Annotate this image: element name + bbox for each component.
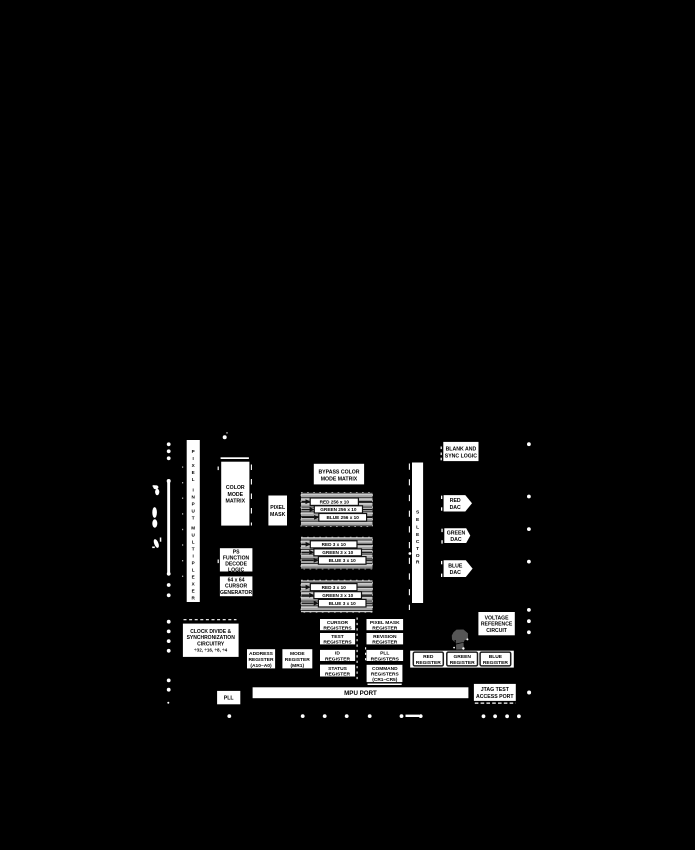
- svg-text:GREEN: GREEN: [453, 654, 471, 660]
- svg-text:MPU PORT: MPU PORT: [344, 690, 377, 697]
- svg-text:DAC: DAC: [450, 570, 461, 576]
- svg-text:BLUE: BLUE: [489, 654, 503, 660]
- svg-text:(CR1–CR5): (CR1–CR5): [372, 677, 397, 683]
- svg-text:REGISTER: REGISTER: [416, 660, 441, 666]
- svg-text:O: O: [416, 553, 420, 559]
- svg-text:L: L: [192, 477, 195, 482]
- svg-text:GENERATOR: GENERATOR: [220, 590, 252, 596]
- svg-text:÷32, ÷16, ÷8, ÷4: ÷32, ÷16, ÷8, ÷4: [194, 648, 228, 653]
- svg-text:REGISTER: REGISTER: [325, 656, 350, 662]
- svg-text:RED: RED: [450, 498, 461, 504]
- svg-text:REGISTER: REGISTER: [483, 660, 508, 666]
- svg-text:STATUS: STATUS: [328, 666, 348, 672]
- svg-text:RED 3 x 10: RED 3 x 10: [322, 585, 347, 590]
- svg-text:CIRCUITRY: CIRCUITRY: [197, 641, 225, 647]
- svg-text:REGISTER: REGISTER: [285, 657, 310, 663]
- svg-text:SYNC LOGIC: SYNC LOGIC: [445, 453, 478, 459]
- svg-text:COMMAND: COMMAND: [372, 666, 398, 672]
- svg-text:P: P: [192, 449, 195, 454]
- svg-text:SYNCHRONIZATION: SYNCHRONIZATION: [187, 635, 236, 641]
- svg-text:REGISTERS: REGISTERS: [323, 625, 352, 631]
- svg-text:DAC: DAC: [450, 505, 461, 511]
- svg-text:CLOCK DIVIDE &: CLOCK DIVIDE &: [190, 629, 231, 635]
- svg-text:REGISTERS: REGISTERS: [371, 656, 400, 662]
- svg-text:I: I: [193, 487, 194, 492]
- svg-text:COLOR: COLOR: [226, 485, 245, 491]
- svg-text:PLL: PLL: [380, 651, 389, 657]
- svg-text:REGISTER: REGISTER: [372, 625, 397, 631]
- svg-text:BLUE 3 x 10: BLUE 3 x 10: [329, 601, 356, 606]
- svg-text:REGISTERS: REGISTERS: [371, 672, 400, 678]
- svg-text:REGISTER: REGISTER: [325, 671, 350, 677]
- svg-text:T: T: [416, 546, 419, 552]
- svg-text:BLUE 3 x 10: BLUE 3 x 10: [329, 558, 356, 563]
- svg-text:TEST: TEST: [331, 634, 344, 640]
- svg-text:P: P: [192, 501, 195, 506]
- svg-text:I: I: [193, 456, 194, 461]
- svg-text:DAC: DAC: [450, 537, 461, 543]
- svg-text:L: L: [192, 568, 195, 573]
- svg-text:REGISTERS: REGISTERS: [323, 640, 352, 646]
- svg-text:PIXEL MASK: PIXEL MASK: [370, 620, 400, 626]
- svg-text:E: E: [192, 470, 195, 475]
- svg-text:GREEN 256 x 10: GREEN 256 x 10: [320, 507, 357, 512]
- svg-text:C: C: [416, 539, 420, 545]
- svg-text:CIRCUIT: CIRCUIT: [486, 628, 508, 634]
- svg-text:RED 3 x 10: RED 3 x 10: [322, 542, 347, 547]
- svg-text:P: P: [192, 561, 195, 566]
- svg-text:REGISTER: REGISTER: [372, 640, 397, 646]
- svg-text:JTAG TEST: JTAG TEST: [481, 687, 510, 693]
- svg-text:BYPASS COLOR: BYPASS COLOR: [318, 470, 359, 476]
- svg-text:E: E: [192, 575, 195, 580]
- svg-text:REFERENCE: REFERENCE: [481, 622, 513, 628]
- svg-text:E: E: [192, 589, 195, 594]
- svg-text:GREEN 3 x 10: GREEN 3 x 10: [322, 550, 353, 555]
- svg-text:MASK: MASK: [270, 512, 286, 518]
- svg-text:GREEN: GREEN: [447, 530, 466, 536]
- svg-text:ACCESS PORT: ACCESS PORT: [476, 694, 514, 700]
- svg-text:BLUE: BLUE: [448, 563, 463, 569]
- svg-text:PLL: PLL: [224, 696, 235, 702]
- svg-text:T: T: [192, 547, 195, 552]
- svg-text:64 x 64: 64 x 64: [228, 577, 245, 583]
- svg-text:L: L: [416, 524, 419, 530]
- svg-text:MATRIX: MATRIX: [226, 499, 246, 505]
- svg-text:REGISTER: REGISTER: [248, 657, 273, 663]
- svg-text:GREEN 3 x 10: GREEN 3 x 10: [322, 593, 353, 598]
- svg-text:PIXEL: PIXEL: [270, 505, 286, 511]
- svg-text:BLANK AND: BLANK AND: [446, 446, 477, 452]
- svg-text:LOGIC: LOGIC: [228, 567, 244, 573]
- svg-text:T: T: [192, 515, 195, 520]
- svg-text:VOLTAGE: VOLTAGE: [485, 616, 509, 622]
- svg-text:(MR1): (MR1): [291, 663, 305, 669]
- svg-text:I: I: [193, 554, 194, 559]
- svg-text:M: M: [191, 526, 195, 531]
- svg-text:(A10–A0): (A10–A0): [250, 663, 272, 669]
- svg-text:REGISTER: REGISTER: [450, 660, 475, 666]
- svg-text:MODE: MODE: [290, 651, 305, 657]
- svg-text:ADDRESS: ADDRESS: [249, 651, 274, 657]
- svg-text:L: L: [192, 540, 195, 545]
- svg-text:ID: ID: [335, 651, 340, 657]
- svg-text:REVISION: REVISION: [373, 634, 397, 640]
- svg-text:BLUE 256 x 10: BLUE 256 x 10: [327, 515, 360, 520]
- svg-text:MODE MATRIX: MODE MATRIX: [321, 476, 358, 482]
- svg-text:RED 256 x 10: RED 256 x 10: [320, 500, 350, 505]
- svg-text:CURSOR: CURSOR: [327, 620, 349, 626]
- svg-text:CURSOR: CURSOR: [225, 584, 247, 590]
- svg-text:R: R: [416, 560, 420, 566]
- svg-text:MODE: MODE: [228, 492, 244, 498]
- svg-text:RED: RED: [423, 654, 434, 660]
